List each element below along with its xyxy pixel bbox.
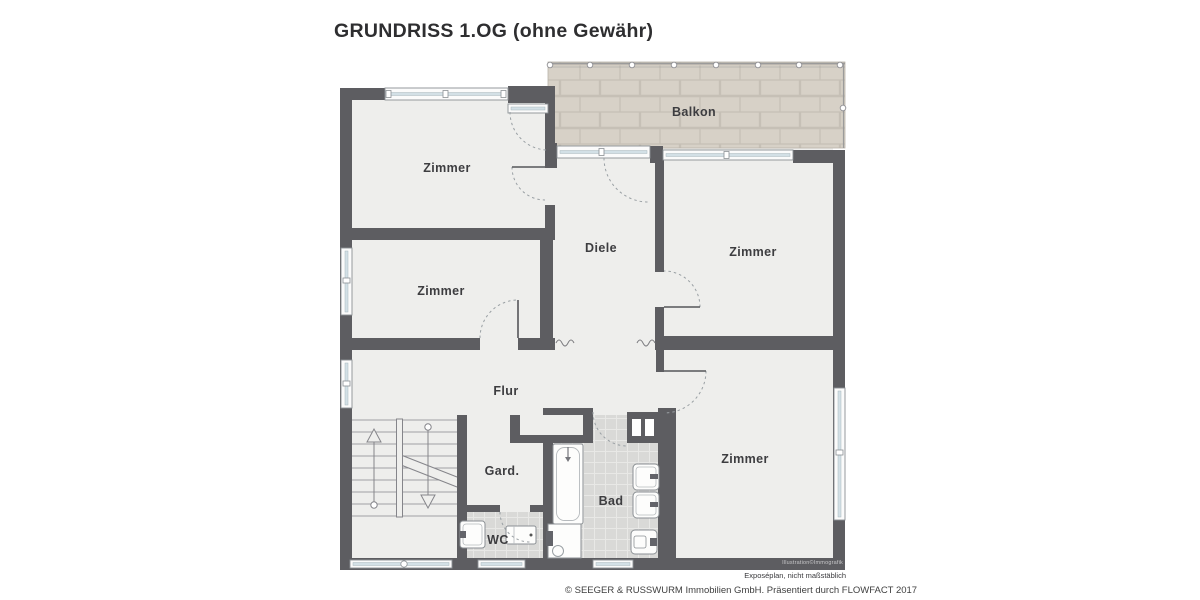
- floorplan-canvas: [0, 0, 1200, 600]
- room-label-garderobe: Gard.: [485, 464, 520, 478]
- window: [341, 248, 352, 315]
- washbasin: [633, 492, 659, 518]
- room-label-zimmer-top-right: Zimmer: [729, 245, 777, 259]
- niche-wall: [510, 435, 593, 443]
- stair-divider: [397, 419, 403, 517]
- wall-segment: [340, 228, 555, 240]
- window: [663, 150, 793, 160]
- wall-segment: [340, 338, 480, 350]
- window: [350, 560, 452, 568]
- wall-segment: [545, 205, 555, 232]
- illustrator-watermark: Illustration©Immografik: [705, 560, 843, 566]
- scale-disclaimer: Exposéplan, nicht maßstäblich: [700, 571, 846, 580]
- wall-segment: [518, 338, 555, 350]
- wall-segment: [540, 240, 553, 340]
- niche-wall: [583, 415, 593, 443]
- wall-segment: [508, 86, 555, 103]
- wall-segment: [467, 505, 500, 512]
- wall-segment: [655, 336, 845, 350]
- shower: [546, 524, 581, 558]
- room-label-diele: Diele: [585, 241, 617, 255]
- wall-segment: [340, 88, 352, 570]
- room-label-wc: WC: [487, 533, 509, 547]
- wall-segment: [545, 143, 557, 168]
- toilet: [631, 530, 657, 554]
- window: [478, 560, 525, 568]
- room-label-balkon: Balkon: [672, 105, 716, 119]
- room-label-zimmer-mid-left: Zimmer: [417, 284, 465, 298]
- room-label-bad: Bad: [599, 494, 624, 508]
- window: [834, 388, 845, 520]
- balcony-door-window: [508, 104, 548, 113]
- wall-segment: [530, 505, 543, 512]
- washbasin: [460, 521, 485, 548]
- room-label-flur: Flur: [493, 384, 518, 398]
- room-label-zimmer-bottom-right: Zimmer: [721, 452, 769, 466]
- wall-segment: [655, 160, 664, 272]
- wall-segment: [656, 350, 664, 372]
- wall-segment: [655, 307, 664, 336]
- page-title: GRUNDRISS 1.OG (ohne Gewähr): [334, 20, 653, 43]
- window: [341, 360, 352, 408]
- wall-segment: [543, 408, 593, 415]
- floorplan-page: GRUNDRISS 1.OG (ohne Gewähr): [0, 0, 1200, 600]
- toilet: [506, 526, 536, 544]
- washbasin: [633, 464, 659, 490]
- window: [593, 560, 633, 568]
- copyright-line: © SEEGER & RUSSWURM Immobilien GmbH. Prä…: [565, 585, 917, 596]
- window: [385, 88, 508, 100]
- bathtub: [553, 444, 583, 524]
- room-label-zimmer-top-left: Zimmer: [423, 161, 471, 175]
- wall-segment: [658, 408, 676, 558]
- balcony-door-window: [557, 146, 650, 158]
